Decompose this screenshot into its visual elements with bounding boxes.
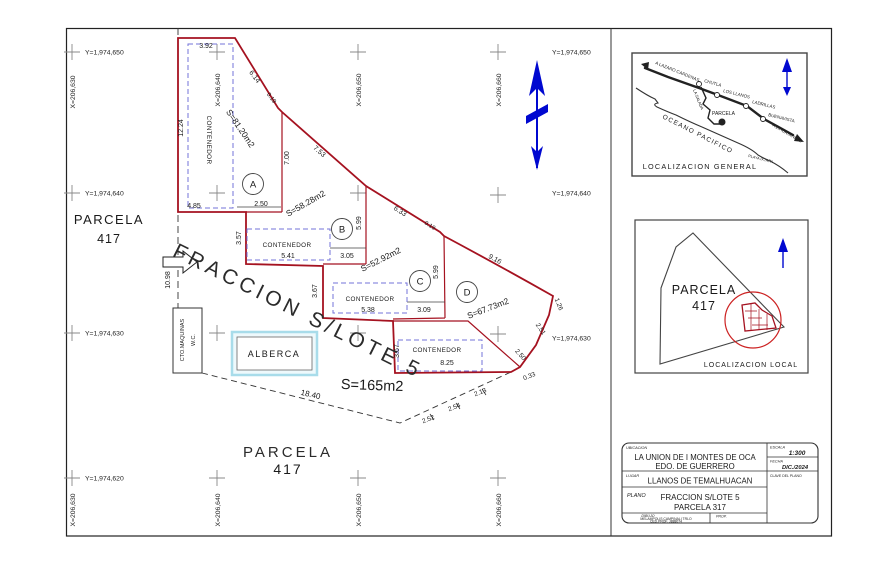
x-label: X=206,660 bbox=[496, 73, 503, 106]
town-dot bbox=[761, 117, 766, 122]
dim-b-left: 3.57 bbox=[236, 231, 243, 245]
fraction-highlight-circle bbox=[725, 292, 781, 348]
machine-room-label: CTO.MAQUINAS bbox=[180, 318, 186, 361]
container-c: 6.33 0.19 S=52.92m2 C 3.67 CONTENEDOR 5.… bbox=[312, 205, 440, 314]
ubicacion-line1: LA UNION DE I MONTES DE OCA bbox=[634, 453, 756, 462]
parcela-map-label: PARCELA bbox=[712, 111, 736, 117]
local-location-map: PARCELA 417 LOCALIZACION LOCAL bbox=[635, 220, 808, 373]
y-label: Y=1,974,640 bbox=[552, 191, 591, 198]
container-strip-label: CONTENEDOR bbox=[413, 347, 462, 354]
area-b: S=58.28m2 bbox=[284, 188, 327, 219]
fraction-mini-steps bbox=[745, 304, 768, 330]
total-area-label: S=165m2 bbox=[341, 377, 404, 395]
main-road bbox=[645, 68, 793, 135]
area-a: S=81.20m2 bbox=[224, 107, 257, 149]
town-dot bbox=[715, 93, 720, 98]
dim-a-bot1: 4.85 bbox=[187, 203, 201, 210]
dim-ab-diag: 7.53 bbox=[312, 145, 327, 159]
local-parcela-number: 417 bbox=[692, 299, 716, 313]
plano-line1: FRACCION S/LOTE 5 bbox=[660, 493, 740, 502]
dim-c-left: 3.67 bbox=[312, 284, 319, 298]
container-divider-lines bbox=[246, 112, 520, 367]
parcela-bottom-label: PARCELA bbox=[243, 444, 333, 461]
dim-c-step: 3.09 bbox=[417, 307, 431, 314]
x-label: X=206,630 bbox=[70, 493, 77, 526]
clave-label: CLAVE DEL PLANO bbox=[770, 474, 802, 478]
north-arrow-icon bbox=[526, 60, 548, 170]
parcela-left-number: 417 bbox=[97, 232, 121, 246]
escala-label: ESCALA bbox=[770, 446, 785, 450]
machine-room-box bbox=[173, 308, 202, 373]
x-label: X=206,640 bbox=[215, 73, 222, 106]
dim-edge4: 0.33 bbox=[522, 371, 537, 382]
parcela-dot bbox=[719, 119, 726, 126]
dim-c-right: 5.99 bbox=[433, 265, 440, 279]
local-map-north-icon bbox=[778, 238, 788, 268]
parcela-bottom-number: 417 bbox=[273, 461, 302, 477]
dim-a-diag: 6.14 bbox=[247, 70, 261, 85]
dim-chain1: 2.13 bbox=[473, 387, 488, 398]
container-a: 3.92 12.24 CONTENEDOR S=81.20m2 A 6.14 0… bbox=[178, 43, 291, 210]
wc-label: W.C. bbox=[191, 334, 197, 346]
title-block: UBICACION LA UNION DE I MONTES DE OCA ED… bbox=[622, 443, 818, 524]
plan-canvas: Y=1,974,650 Y=1,974,640 Y=1,974,630 Y=1,… bbox=[0, 0, 893, 563]
dim-chain2: 2.54 bbox=[447, 402, 462, 413]
plano-label: PLANO bbox=[627, 493, 646, 499]
pool-label: ALBERCA bbox=[248, 349, 301, 359]
dim-a-right: 7.00 bbox=[284, 151, 291, 165]
container-b-label: CONTENEDOR bbox=[263, 242, 312, 249]
x-label: X=206,650 bbox=[356, 73, 363, 106]
y-coordinate-labels: Y=1,974,650 Y=1,974,640 Y=1,974,630 Y=1,… bbox=[85, 50, 591, 483]
lugar-label: LUGAR bbox=[626, 474, 639, 478]
dim-bc-diag: 6.33 bbox=[392, 205, 407, 218]
x-label: X=206,640 bbox=[215, 493, 222, 526]
dim-b-width: 5.41 bbox=[281, 253, 295, 260]
x-label: X=206,650 bbox=[356, 493, 363, 526]
fecha-value: DIC./2024 bbox=[782, 465, 809, 471]
dim-a-top: 3.92 bbox=[199, 43, 213, 50]
town-label: LADRILLAS bbox=[752, 99, 776, 110]
container-c-id: C bbox=[417, 277, 424, 288]
dim-b-right: 5.99 bbox=[356, 216, 363, 230]
y-label: Y=1,974,640 bbox=[85, 191, 124, 198]
ubicacion-label: UBICACION bbox=[626, 446, 647, 450]
dim-base: 18.40 bbox=[300, 388, 322, 401]
general-location-map: A LAZARO CARDENAS CHUTLA LOS LLANOS LADR… bbox=[632, 53, 807, 176]
dim-b-step: 3.05 bbox=[340, 253, 354, 260]
parcela-outline bbox=[660, 233, 784, 364]
y-label: Y=1,974,630 bbox=[85, 331, 124, 338]
plano-line2: PARCELA 317 bbox=[674, 503, 726, 512]
dim-edge1: 1.26 bbox=[553, 297, 564, 312]
area-d: S=67.73m2 bbox=[466, 296, 511, 321]
dim-strip-width: 8.25 bbox=[440, 360, 454, 367]
plan-sheet: Y=1,974,650 Y=1,974,640 Y=1,974,630 Y=1,… bbox=[0, 0, 893, 563]
escala-value: 1:300 bbox=[789, 450, 806, 457]
container-b-id: B bbox=[339, 225, 345, 236]
ubicacion-line2: EDO. DE GUERRERO bbox=[655, 462, 734, 471]
dim-a-bot2: 2.50 bbox=[254, 201, 268, 208]
dim-a-left: 12.24 bbox=[178, 119, 185, 137]
town-label: CHUTLA bbox=[704, 78, 722, 88]
town-dot bbox=[744, 104, 749, 109]
general-map-title: LOCALIZACION GENERAL bbox=[643, 162, 757, 171]
local-parcela-label: PARCELA bbox=[672, 283, 736, 297]
general-map-north-icon bbox=[782, 58, 792, 96]
fecha-label: FECHA bbox=[770, 460, 783, 464]
y-label: Y=1,974,650 bbox=[85, 50, 124, 57]
town-dot bbox=[697, 82, 702, 87]
prop-label: PROP. bbox=[716, 515, 727, 519]
dim-access: 10.98 bbox=[165, 271, 172, 289]
lugar-value: LLANOS DE TEMALHUACAN bbox=[648, 477, 753, 486]
x-label: X=206,660 bbox=[496, 493, 503, 526]
town-label: BUENAVISTA bbox=[768, 112, 796, 123]
dim-chain3: 2.52 bbox=[421, 414, 436, 425]
y-label: Y=1,974,630 bbox=[552, 336, 591, 343]
container-a-label: CONTENEDOR bbox=[205, 116, 212, 165]
container-d-id: D bbox=[464, 288, 471, 299]
container-c-label: CONTENEDOR bbox=[346, 296, 395, 303]
parcela-left-label: PARCELA bbox=[74, 212, 144, 227]
dim-bc-jog: 0.19 bbox=[423, 221, 437, 233]
y-label: Y=1,974,650 bbox=[552, 50, 591, 57]
container-a-id: A bbox=[250, 180, 257, 191]
dibujo-line2: CED.PROF. J888074 bbox=[650, 520, 682, 524]
local-map-title: LOCALIZACION LOCAL bbox=[704, 362, 798, 369]
x-label: X=206,630 bbox=[70, 75, 77, 108]
road-se-label: A ZIHUATANEJO bbox=[772, 123, 804, 144]
dim-c-width: 5.38 bbox=[361, 307, 375, 314]
y-label: Y=1,974,620 bbox=[85, 476, 124, 483]
